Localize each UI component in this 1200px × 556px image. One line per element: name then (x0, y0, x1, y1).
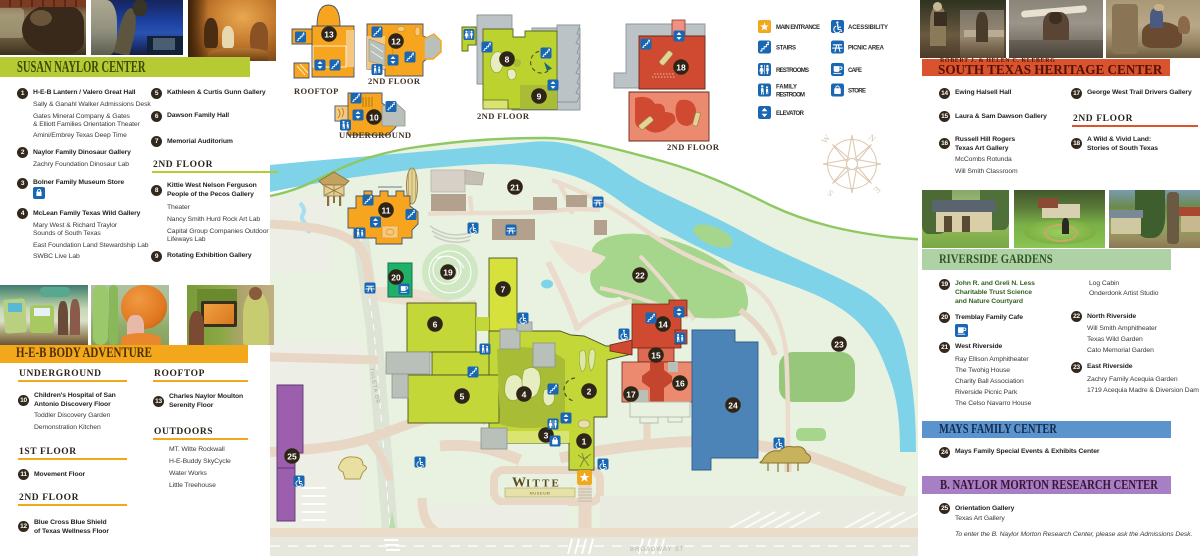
svg-text:3: 3 (544, 431, 549, 441)
svg-text:20: 20 (391, 273, 401, 283)
svg-text:22: 22 (635, 271, 645, 281)
svg-text:MAIN ENTRANCE: MAIN ENTRANCE (776, 25, 820, 31)
svg-text:13: 13 (324, 30, 334, 40)
svg-text:ELEVATOR: ELEVATOR (776, 111, 805, 117)
svg-text:8: 8 (505, 55, 510, 65)
svg-text:MUSEUM: MUSEUM (530, 491, 551, 495)
svg-text:4: 4 (522, 390, 527, 400)
svg-text:E: E (871, 184, 883, 195)
svg-text:UNDERGROUND: UNDERGROUND (339, 130, 411, 140)
svg-text:2ND FLOOR: 2ND FLOOR (368, 76, 421, 86)
svg-text:14: 14 (658, 320, 668, 330)
svg-text:24: 24 (728, 401, 738, 411)
svg-text:2ND FLOOR: 2ND FLOOR (477, 111, 530, 121)
svg-text:7: 7 (501, 285, 506, 295)
svg-text:10: 10 (369, 113, 379, 123)
svg-text:25: 25 (287, 452, 297, 462)
svg-text:RESTROOM: RESTROOM (776, 93, 805, 99)
svg-text:19: 19 (443, 268, 453, 278)
svg-text:N: N (866, 132, 878, 144)
svg-text:16: 16 (675, 379, 685, 389)
svg-text:BROADWAY ST: BROADWAY ST (630, 547, 685, 553)
svg-text:6: 6 (433, 320, 438, 330)
svg-text:RESTROOMS: RESTROOMS (776, 68, 809, 74)
svg-text:S: S (825, 188, 835, 199)
svg-text:2ND FLOOR: 2ND FLOOR (667, 142, 720, 152)
svg-text:18: 18 (676, 63, 686, 73)
svg-text:ROOFTOP: ROOFTOP (294, 86, 339, 96)
svg-text:15: 15 (651, 351, 661, 361)
svg-text:9: 9 (537, 92, 542, 102)
svg-text:2: 2 (587, 387, 592, 397)
svg-text:5: 5 (460, 392, 465, 402)
svg-text:CAFE: CAFE (848, 68, 862, 74)
svg-text:1: 1 (582, 437, 587, 447)
svg-text:STAIRS: STAIRS (776, 45, 796, 51)
svg-text:W: W (819, 132, 832, 145)
svg-text:STORE: STORE (848, 88, 866, 94)
svg-text:17: 17 (626, 390, 636, 400)
svg-text:12: 12 (391, 37, 401, 47)
svg-text:23: 23 (834, 340, 844, 350)
svg-text:PICNIC AREA: PICNIC AREA (848, 45, 885, 51)
svg-text:21: 21 (510, 183, 520, 193)
svg-text:FAMILY: FAMILY (776, 85, 797, 91)
svg-text:ACESSIBILITY: ACESSIBILITY (848, 25, 888, 31)
svg-text:11: 11 (382, 206, 391, 216)
